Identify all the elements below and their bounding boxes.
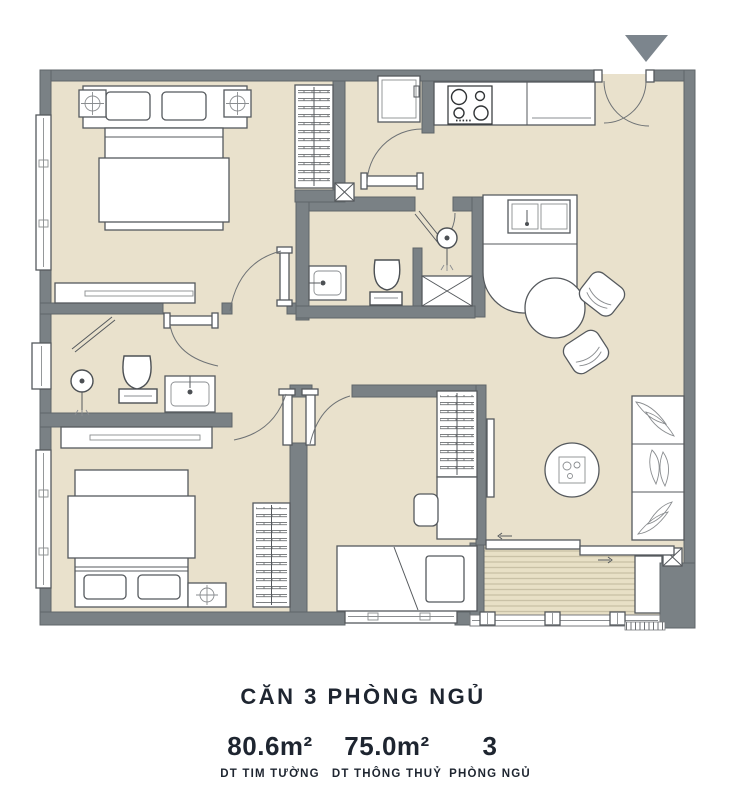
dining-table [525,278,585,338]
coffee-table-icon [545,443,599,497]
stat-gross-area: 80.6m² DT TIM TƯỜNG [220,733,320,780]
shaft-icon [335,183,354,201]
nightstand-icon [79,90,106,117]
wardrobe-icon [437,391,477,477]
stat-label: DT TIM TƯỜNG [220,768,320,780]
balcony [484,548,663,615]
kitchen-sink-icon [508,200,570,233]
wardrobe-icon [253,503,290,607]
balcony-unit [635,556,662,613]
shaft-icon [422,276,472,306]
window [32,343,51,389]
stat-value: 3 [449,733,531,759]
window [36,450,51,588]
stat-value: 80.6m² [220,733,320,759]
tv-console [487,419,494,497]
sink-icon [165,376,215,412]
cooktop-icon [448,86,492,124]
stat-label: PHÒNG NGỦ [449,768,531,780]
sink-icon [309,266,346,300]
desk-icon [437,477,477,539]
sofa-icon [632,396,684,540]
sliding-door [580,546,674,555]
balcony-drain [625,622,665,630]
entrance-marker-icon [625,35,668,62]
nightstand-icon [188,583,226,607]
floor-plan-page: CĂN 3 PHÒNG NGỦ 80.6m² DT TIM TƯỜNG 75.0… [0,0,742,800]
plan-title: CĂN 3 PHÒNG NGỦ [240,684,485,710]
wardrobe-icon [295,85,333,188]
sliding-door [486,540,580,549]
stat-label: DT THÔNG THUỶ [332,768,442,780]
stat-bedrooms: 3 PHÒNG NGỦ [449,733,531,780]
desk-icon [61,427,212,448]
stat-value: 75.0m² [332,733,442,759]
window [345,610,457,623]
chair-icon [414,494,438,526]
desk-icon [55,283,195,303]
double-bed-icon [83,86,247,230]
window [36,115,51,270]
single-bed-icon [337,546,477,611]
stat-net-area: 75.0m² DT THÔNG THUỶ [332,733,442,780]
double-bed-icon [68,470,195,607]
nightstand-icon [224,90,251,117]
washer-icon [378,76,420,122]
floor-plan-drawing [0,0,742,800]
